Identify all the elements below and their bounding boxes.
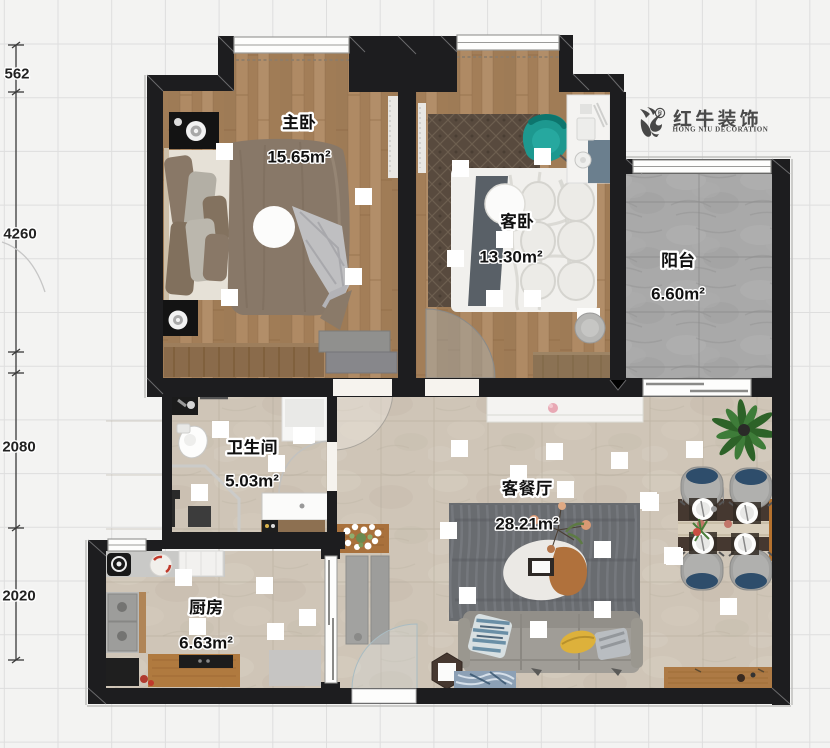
svg-text:13.30m²: 13.30m² xyxy=(479,248,543,267)
svg-text:15.65m²: 15.65m² xyxy=(267,148,331,167)
svg-text:6.60m²: 6.60m² xyxy=(651,285,705,304)
svg-text:28.21m²: 28.21m² xyxy=(495,515,559,534)
svg-text:2020: 2020 xyxy=(2,588,35,605)
svg-text:562: 562 xyxy=(4,66,29,83)
svg-text:6.63m²: 6.63m² xyxy=(179,634,233,653)
svg-text:2080: 2080 xyxy=(2,439,35,456)
svg-text:HONG NIU DECORATION: HONG NIU DECORATION xyxy=(673,125,769,133)
svg-text:5.03m²: 5.03m² xyxy=(225,472,279,491)
svg-text:R: R xyxy=(658,110,662,116)
svg-text:4260: 4260 xyxy=(3,226,36,243)
